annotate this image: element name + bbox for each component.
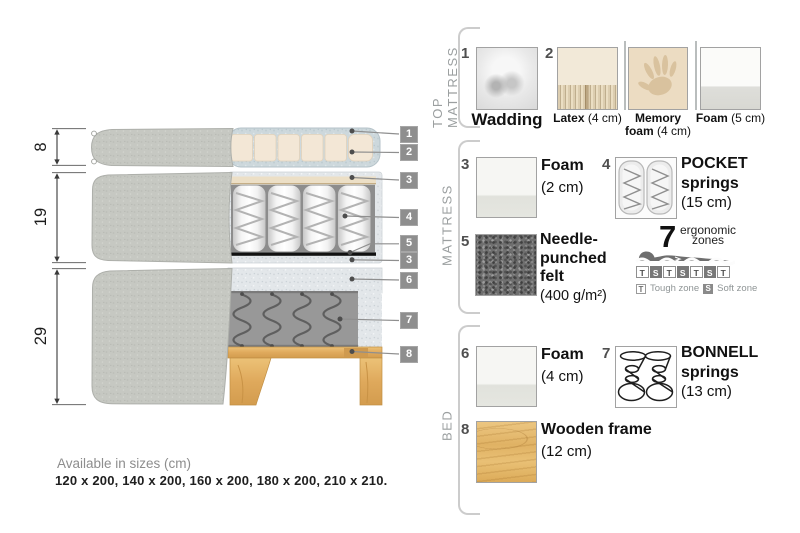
foam-top-label: Foam (5 cm) bbox=[692, 112, 769, 125]
divider bbox=[624, 41, 626, 110]
available-sizes-list: 120 x 200, 140 x 200, 160 x 200, 180 x 2… bbox=[55, 473, 387, 488]
callout-8: 8 bbox=[400, 346, 418, 363]
callout-1: 1 bbox=[400, 126, 418, 143]
zone-legend: T Tough zone S Soft zone bbox=[636, 283, 757, 294]
foam-mattress-image bbox=[476, 157, 537, 218]
item-number-latex: 2 bbox=[545, 46, 553, 61]
wadding-label: Wadding bbox=[458, 110, 556, 130]
zone-cell-soft: S bbox=[704, 266, 717, 278]
callout-7: 7 bbox=[400, 312, 418, 329]
callout-6: 6 bbox=[400, 272, 418, 289]
sleeping-person-icon bbox=[635, 246, 735, 267]
pocket-springs-image bbox=[615, 157, 677, 219]
latex-blocks bbox=[231, 135, 373, 162]
foam-top-image bbox=[700, 47, 761, 110]
wooden-frame-label: Wooden frame (12 cm) bbox=[541, 419, 652, 463]
zone-cell-soft: S bbox=[677, 266, 690, 278]
pocket-springs-label: POCKET springs (15 cm) bbox=[681, 154, 748, 213]
dimension-arrows bbox=[52, 129, 86, 405]
memory-foam-label: Memory foam (4 cm) bbox=[618, 112, 698, 138]
pocket-springs-icon bbox=[616, 158, 675, 217]
item-number-pocket: 4 bbox=[602, 157, 610, 172]
soft-zone-key: S bbox=[703, 284, 713, 294]
zone-cell-tough: T bbox=[636, 266, 649, 278]
item-number-bonnell: 7 bbox=[602, 346, 610, 361]
soft-zone-label: Soft zone bbox=[717, 283, 757, 294]
item-number-felt: 5 bbox=[461, 234, 469, 249]
dimension-label-top-mattress: 8 bbox=[32, 142, 50, 151]
bonnell-springs-image bbox=[615, 346, 677, 408]
felt-label: Needle- punched felt (400 g/m²) bbox=[540, 231, 607, 305]
callout-3-bottom: 3 bbox=[400, 252, 418, 269]
latex-image bbox=[557, 47, 618, 110]
divider bbox=[695, 41, 697, 110]
bed-fabric bbox=[92, 269, 232, 405]
mattress-fabric bbox=[92, 173, 232, 264]
callout-5: 5 bbox=[400, 235, 418, 252]
wadding-image bbox=[476, 47, 538, 110]
top-mattress-fabric bbox=[92, 129, 234, 167]
available-sizes-title: Available in sizes (cm) bbox=[57, 456, 191, 471]
top-mattress-cross-section bbox=[92, 128, 381, 167]
wood-leg-right bbox=[360, 358, 382, 405]
infographic-mattress-construction: 8 19 29 bbox=[0, 0, 800, 533]
callout-4: 4 bbox=[400, 209, 418, 226]
ergonomic-zones-label: ergonomic zones bbox=[678, 225, 738, 245]
section-label-bed: BED bbox=[438, 402, 456, 448]
foam-bed-label: Foam (4 cm) bbox=[541, 344, 584, 388]
foam-mattress-label: Foam (2 cm) bbox=[541, 155, 584, 199]
tough-zone-label: Tough zone bbox=[650, 283, 699, 294]
section-label-mattress: MATTRESS bbox=[438, 180, 456, 270]
callout-3-top: 3 bbox=[400, 172, 418, 189]
zone-cell-tough: T bbox=[717, 266, 730, 278]
item-number-wadding: 1 bbox=[461, 46, 469, 61]
memory-foam-image bbox=[628, 47, 688, 110]
bed-cross-section-diagram: 8 19 29 bbox=[0, 0, 440, 533]
callout-2: 2 bbox=[400, 144, 418, 161]
zone-cell-tough: T bbox=[690, 266, 703, 278]
section-label-top-mattress: TOP MATTRESS bbox=[436, 27, 454, 128]
zone-cell-tough: T bbox=[663, 266, 676, 278]
zone-cell-soft: S bbox=[650, 266, 663, 278]
bed-cross-section bbox=[92, 268, 382, 405]
bonnell-springs-label: BONNELL springs (13 cm) bbox=[681, 343, 758, 402]
dimension-label-mattress: 19 bbox=[32, 208, 50, 226]
dimension-label-bed: 29 bbox=[32, 327, 50, 345]
bonnell-springs-icon bbox=[616, 347, 675, 406]
item-number-foam-bed: 6 bbox=[461, 346, 469, 361]
hand-imprint-icon bbox=[629, 48, 686, 108]
wood-leg-left bbox=[230, 358, 271, 405]
item-number-wood: 8 bbox=[461, 422, 469, 437]
wooden-frame-image bbox=[476, 421, 537, 483]
felt-image bbox=[475, 234, 537, 296]
item-number-foam-mattress: 3 bbox=[461, 157, 469, 172]
felt-layer bbox=[230, 252, 376, 255]
zone-cells: T S T S T S T bbox=[636, 266, 730, 278]
tough-zone-key: T bbox=[636, 284, 646, 294]
mattress-cross-section bbox=[92, 172, 382, 263]
bed-foam-layer bbox=[228, 268, 382, 293]
foam-bed-image bbox=[476, 346, 537, 407]
